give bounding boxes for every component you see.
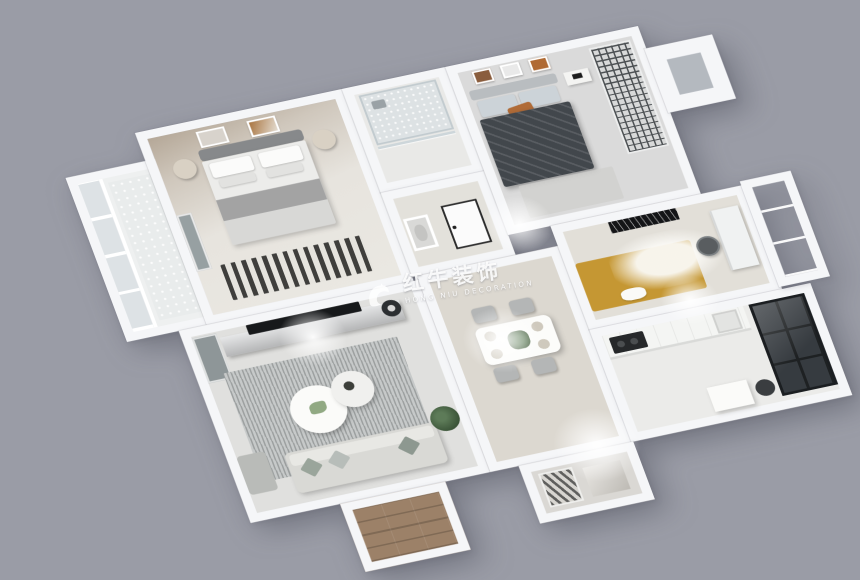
clock xyxy=(572,73,583,80)
burner xyxy=(616,340,626,348)
place-setting xyxy=(483,330,498,342)
picture-frame xyxy=(528,56,552,73)
nightstand-right xyxy=(309,127,339,151)
appliance xyxy=(753,378,778,398)
burner xyxy=(629,337,639,345)
place-setting xyxy=(530,320,545,332)
striped-rug xyxy=(220,235,374,300)
foyer-step xyxy=(582,460,630,497)
centerpiece-plant xyxy=(505,329,532,351)
floorplan-render: 红牛装饰 HONG NIU DECORATION xyxy=(0,0,860,580)
door-handle xyxy=(452,225,457,229)
interior-door xyxy=(440,199,492,250)
white-shag-rug xyxy=(602,221,731,297)
dining-chair xyxy=(470,305,498,324)
sink xyxy=(711,309,743,333)
bay-window-glass xyxy=(667,52,714,94)
cooktop xyxy=(609,331,649,354)
niche-decor xyxy=(412,224,429,242)
dining-chair xyxy=(508,297,536,316)
vase xyxy=(342,380,356,391)
dining-chair xyxy=(492,364,520,383)
nightstand xyxy=(563,68,592,86)
nightstand-left xyxy=(170,157,200,181)
wall-niche xyxy=(403,214,439,251)
picture-frame xyxy=(471,68,495,85)
hongniu-bull-logo-icon xyxy=(360,273,398,311)
table-flowers xyxy=(308,400,329,415)
place-setting xyxy=(536,338,551,350)
patterned-accent-panel xyxy=(538,467,584,508)
kitchen-island xyxy=(707,380,755,412)
place-setting xyxy=(489,348,504,360)
picture-frame xyxy=(499,62,523,79)
shower-head xyxy=(371,99,387,110)
dining-chair xyxy=(530,356,558,375)
